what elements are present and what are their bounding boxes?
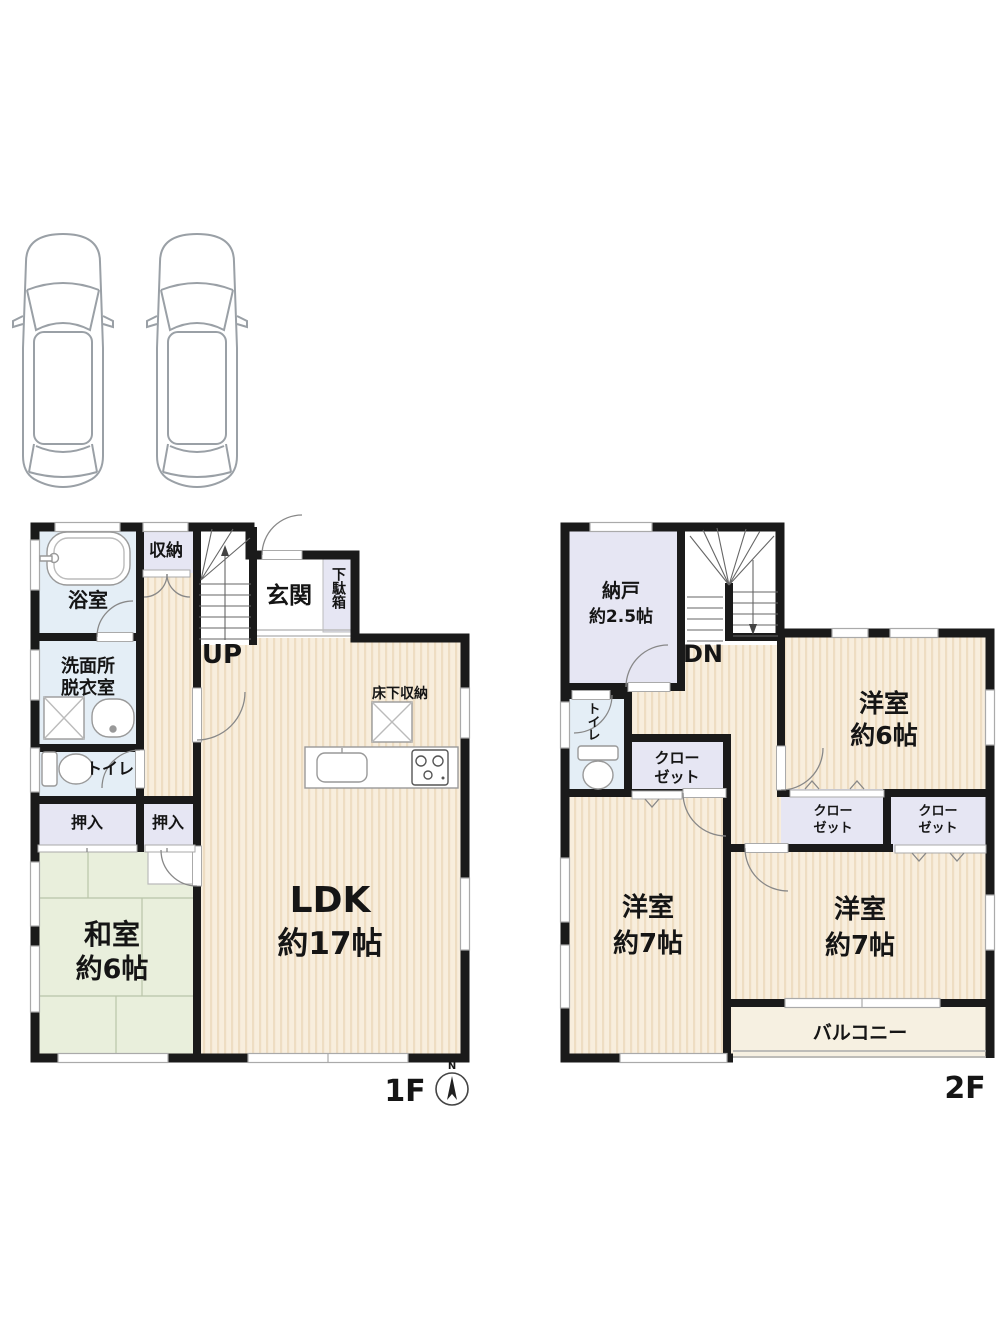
stairs-up-label: UP: [202, 640, 242, 670]
washing-machine-icon: [44, 697, 84, 739]
oshiire-left-label: 押入: [71, 813, 103, 832]
western-room-7r-label-1: 洋室: [834, 894, 886, 925]
western-room-7l-label-1: 洋室: [622, 892, 674, 923]
closet-hall-label-2: ゼット: [654, 768, 699, 786]
floorplan-canvas: 浴室 収納 玄関 下駄箱 洗面所 脱衣室 UP 床下収納 トイレ 押入 押入 和…: [0, 0, 1000, 1333]
storage-label: 収納: [149, 540, 183, 561]
western-room-7r-label-2: 約7帖: [825, 930, 895, 961]
closet-b-label-2: ゼット: [918, 820, 957, 836]
floor1-plan: 浴室 収納 玄関 下駄箱 洗面所 脱衣室 UP 床下収納 トイレ 押入 押入 和…: [31, 515, 470, 1109]
kitchen-sink-icon: [317, 753, 367, 782]
compass-north-label: N: [448, 1061, 456, 1072]
closet-a-label-1: クロー: [813, 804, 852, 819]
entrance-label: 玄関: [266, 582, 312, 609]
car-icon-2: [147, 234, 247, 487]
closet-hall-label-1: クロー: [654, 749, 699, 767]
japanese-room-label-2: 約6帖: [76, 953, 149, 985]
underfloor-storage-label: 床下収納: [372, 685, 428, 702]
washroom-label-1: 洗面所: [61, 655, 115, 677]
closet-b-label-1: クロー: [918, 804, 957, 819]
washroom-label-2: 脱衣室: [61, 677, 115, 699]
washbasin-icon: [92, 699, 134, 737]
storeroom-label-1: 納戸: [602, 579, 640, 602]
shoe-cabinet-label: 下駄箱: [330, 567, 346, 610]
ldk-label-1: LDK: [290, 880, 372, 921]
balcony-label: バルコニー: [813, 1022, 908, 1044]
western-room-6-label-1: 洋室: [859, 689, 909, 718]
kitchen-counter: [305, 747, 458, 788]
japanese-room-label-1: 和室: [84, 918, 140, 951]
floor2-label: 2F: [944, 1071, 985, 1106]
floor1-label: 1F: [384, 1074, 425, 1109]
parking-area: [13, 234, 247, 487]
bathroom-label: 浴室: [68, 588, 108, 612]
toilet-2f-label: トイレ: [585, 702, 601, 741]
underfloor-storage-icon: [372, 702, 412, 742]
car-icon-1: [13, 234, 113, 487]
stairs-dn-label: DN: [683, 640, 723, 668]
stove-icon: [412, 750, 448, 785]
western-room-7l-label-2: 約7帖: [613, 928, 683, 959]
closet-a-label-2: ゼット: [813, 820, 852, 836]
floorplan-svg: 浴室 収納 玄関 下駄箱 洗面所 脱衣室 UP 床下収納 トイレ 押入 押入 和…: [0, 0, 1000, 1333]
toilet-1f-label: トイレ: [86, 759, 134, 778]
ldk-label-2: 約17帖: [277, 926, 382, 962]
compass-icon: N: [436, 1061, 468, 1105]
floor2-plan: 納戸 約2.5帖 DN トイレ クロー ゼット 洋室 約6帖 クロー ゼット ク…: [561, 523, 995, 1107]
bathtub-icon: [40, 532, 130, 585]
western-room-6-label-2: 約6帖: [850, 721, 917, 750]
oshiire-right-label: 押入: [152, 813, 184, 832]
storeroom-label-2: 約2.5帖: [589, 606, 653, 627]
